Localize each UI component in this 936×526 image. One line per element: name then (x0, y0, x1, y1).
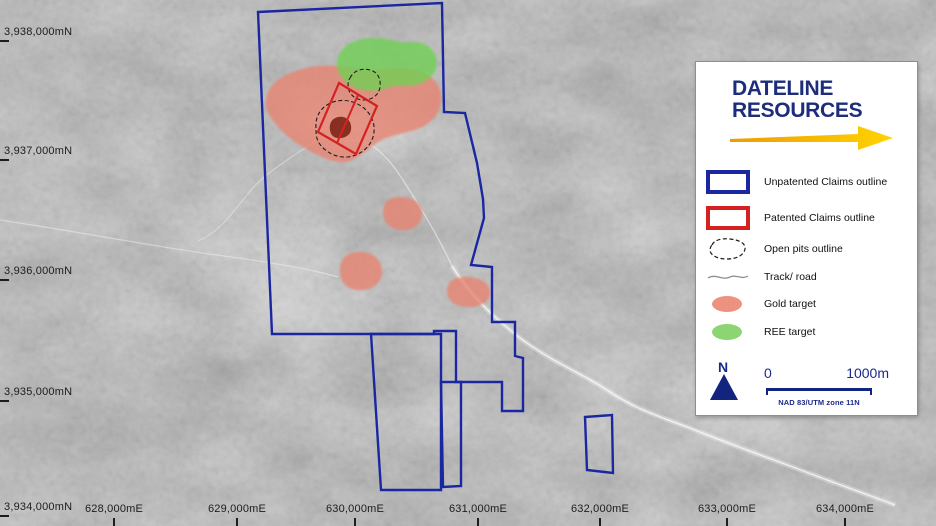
scale-bar (766, 388, 872, 391)
northing-label: 3,937,000mN (4, 145, 72, 157)
easting-label: 631,000mE (438, 503, 518, 515)
easting-tick (844, 518, 846, 526)
northing-label: 3,934,000mN (4, 501, 72, 513)
legend-item-unpatented: Unpatented Claims outline (706, 167, 887, 197)
dateline-resources-logo: DATELINE RESOURCES (732, 78, 862, 122)
unpatented-claims-swatch-icon (706, 170, 750, 194)
legend-item-gold-target: Gold target (706, 291, 816, 317)
easting-tick (113, 518, 115, 526)
easting-label: 633,000mE (687, 503, 767, 515)
patented-claims-swatch-icon (706, 206, 750, 230)
easting-label: 630,000mE (315, 503, 395, 515)
northing-tick (0, 40, 9, 42)
logo-line-1: DATELINE (732, 78, 862, 100)
northing-tick (0, 515, 9, 517)
ree-target-swatch-icon (712, 324, 742, 340)
map-canvas: 3,938,000mN3,937,000mN3,936,000mN3,935,0… (0, 0, 936, 526)
northing-label: 3,938,000mN (4, 26, 72, 38)
easting-label: 628,000mE (74, 503, 154, 515)
easting-tick (599, 518, 601, 526)
easting-tick (477, 518, 479, 526)
scale-start-label: 0 (764, 365, 772, 381)
gold-target-2 (383, 197, 422, 230)
legend-item-track: Track/ road (706, 265, 817, 289)
north-label: N (718, 359, 728, 375)
legend-item-label: Patented Claims outline (764, 212, 875, 224)
northing-tick (0, 159, 9, 161)
datum-label: NAD 83/UTM zone 11N (766, 398, 872, 407)
northing-tick (0, 400, 9, 402)
logo-arrow-icon (730, 122, 896, 154)
easting-label: 629,000mE (197, 503, 277, 515)
north-arrow-icon (710, 374, 738, 400)
open-pit-swatch-icon (706, 236, 750, 262)
gold-target-4 (447, 277, 490, 307)
legend-item-label: Open pits outline (764, 243, 843, 255)
legend-item-patented: Patented Claims outline (706, 203, 875, 233)
northing-tick (0, 279, 9, 281)
legend-item-label: REE target (764, 326, 815, 338)
legend-item-label: Unpatented Claims outline (764, 176, 887, 188)
legend-item-open-pits: Open pits outline (706, 235, 843, 263)
easting-tick (726, 518, 728, 526)
legend-panel: DATELINE RESOURCES Unpatented Claims out… (695, 61, 918, 416)
northing-label: 3,935,000mN (4, 386, 72, 398)
gold-target-3 (340, 252, 382, 290)
northing-label: 3,936,000mN (4, 265, 72, 277)
easting-label: 632,000mE (560, 503, 640, 515)
track-road-swatch-icon (706, 270, 750, 284)
legend-item-ree-target: REE target (706, 319, 815, 345)
easting-tick (354, 518, 356, 526)
legend-item-label: Gold target (764, 298, 816, 310)
easting-tick (236, 518, 238, 526)
logo-line-2: RESOURCES (732, 100, 862, 122)
gold-target-swatch-icon (712, 296, 742, 312)
scale-end-label: 1000m (846, 365, 889, 381)
legend-item-label: Track/ road (764, 271, 817, 283)
easting-label: 634,000mE (805, 503, 885, 515)
